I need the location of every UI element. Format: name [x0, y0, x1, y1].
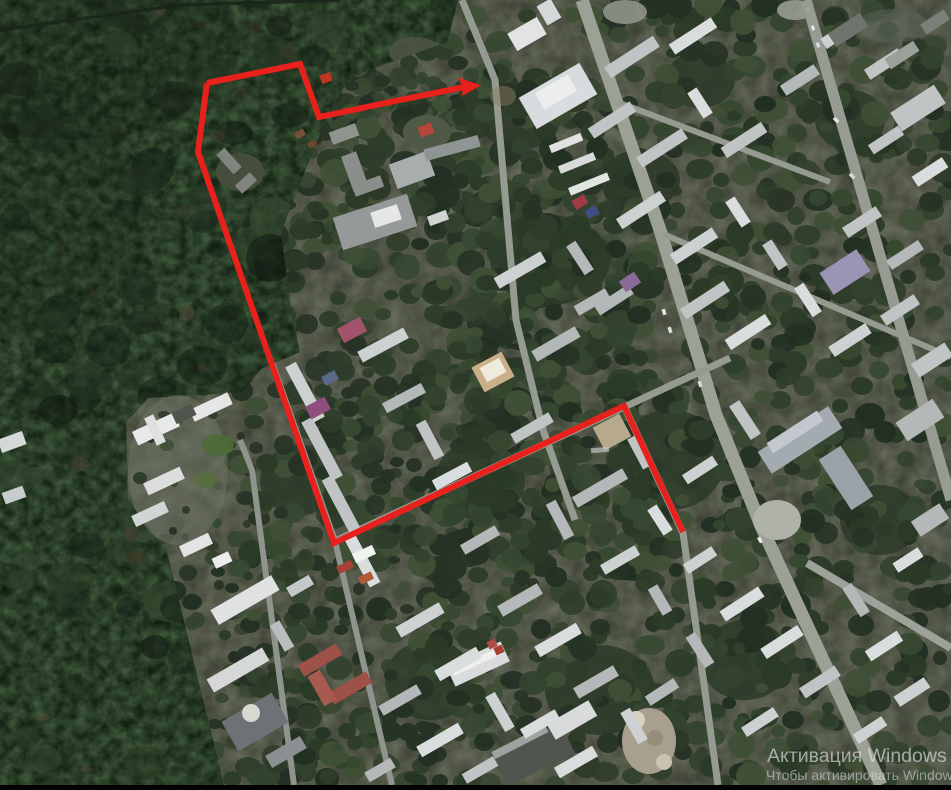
svg-text:Активация Windows: Активация Windows [767, 745, 947, 767]
svg-text:Чтобы активировать Windows, пе: Чтобы активировать Windows, перейдите в … [766, 767, 951, 783]
